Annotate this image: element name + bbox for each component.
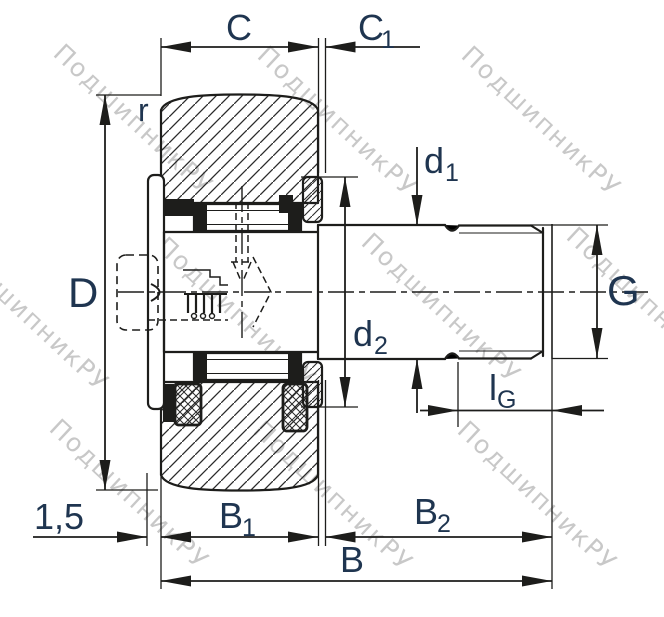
label-d1: d [424,140,444,181]
dimension-r: r [138,92,149,128]
label-lG-sub: G [497,386,516,414]
label-d1-sub: 1 [445,159,459,187]
label-d2-sub: 2 [374,332,388,360]
label-C1-sub: 1 [381,26,395,54]
watermark-text: ПодшипникРУ [452,415,623,577]
relief-groove-bottom [445,353,459,359]
cam-follower-section-drawing: ПодшипникРУ ПодшипникРУ ПодшипникРУ Подш… [0,0,664,617]
watermark-text: ПодшипникРУ [456,40,627,202]
label-D: D [68,269,98,316]
label-B1: B [219,495,243,536]
watermark-text: ПодшипникРУ [356,227,527,389]
relief-groove-top [445,225,459,231]
label-C: C [226,7,252,48]
dimension-B1: B 1 [161,495,318,543]
label-lG: l [489,367,497,408]
technical-drawing-page: ПодшипникРУ ПодшипникРУ ПодшипникРУ Подш… [0,0,664,617]
watermark-layer: ПодшипникРУ ПодшипникРУ ПодшипникРУ Подш… [0,38,664,577]
label-B: B [340,539,364,580]
label-B2-sub: 2 [437,510,451,538]
dimension-B: B [161,539,552,587]
needle-rollers-bottom [194,353,301,380]
label-chamfer: 1,5 [34,496,84,537]
label-G: G [607,267,640,314]
label-B1-sub: 1 [242,514,256,542]
label-B2: B [414,491,438,532]
outer-ring-section-top [161,95,318,204]
label-d2: d [353,313,373,354]
watermark-text: ПодшипникРУ [0,235,115,397]
